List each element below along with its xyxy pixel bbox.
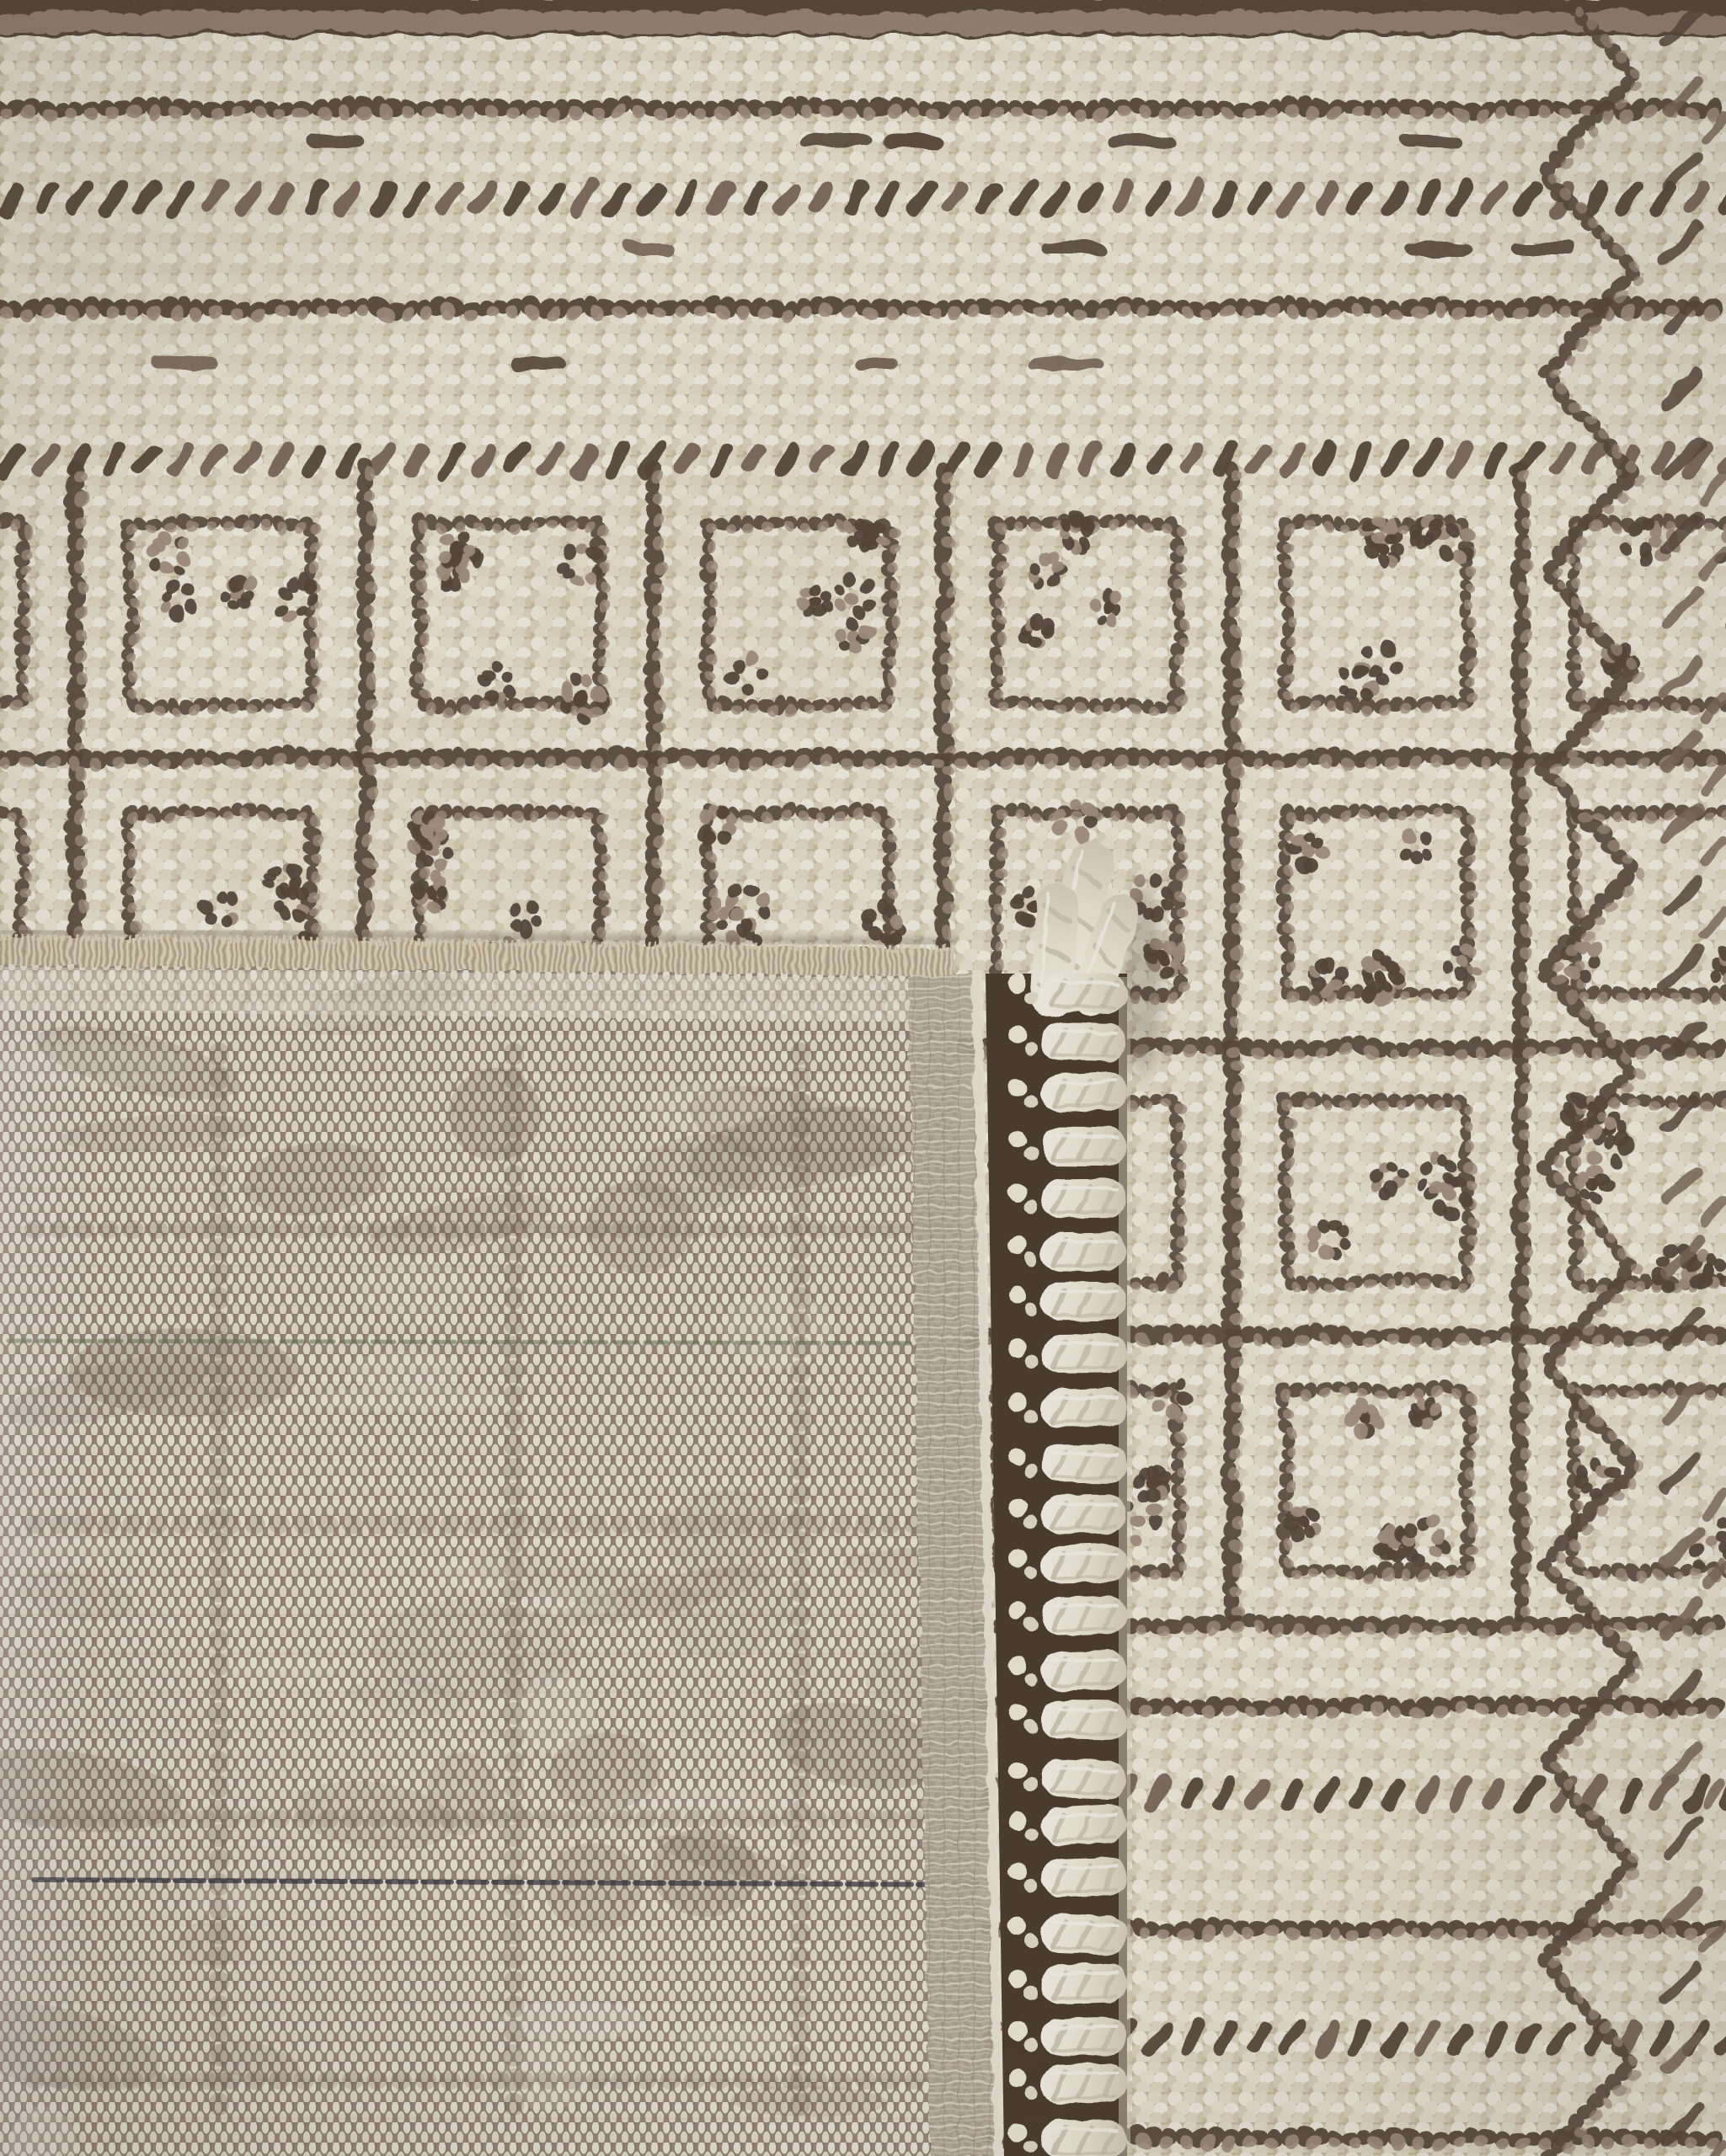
vignette-overlay bbox=[0, 0, 1726, 2156]
rug-photo bbox=[0, 0, 1726, 2156]
rug-photo-scene bbox=[0, 0, 1726, 2156]
